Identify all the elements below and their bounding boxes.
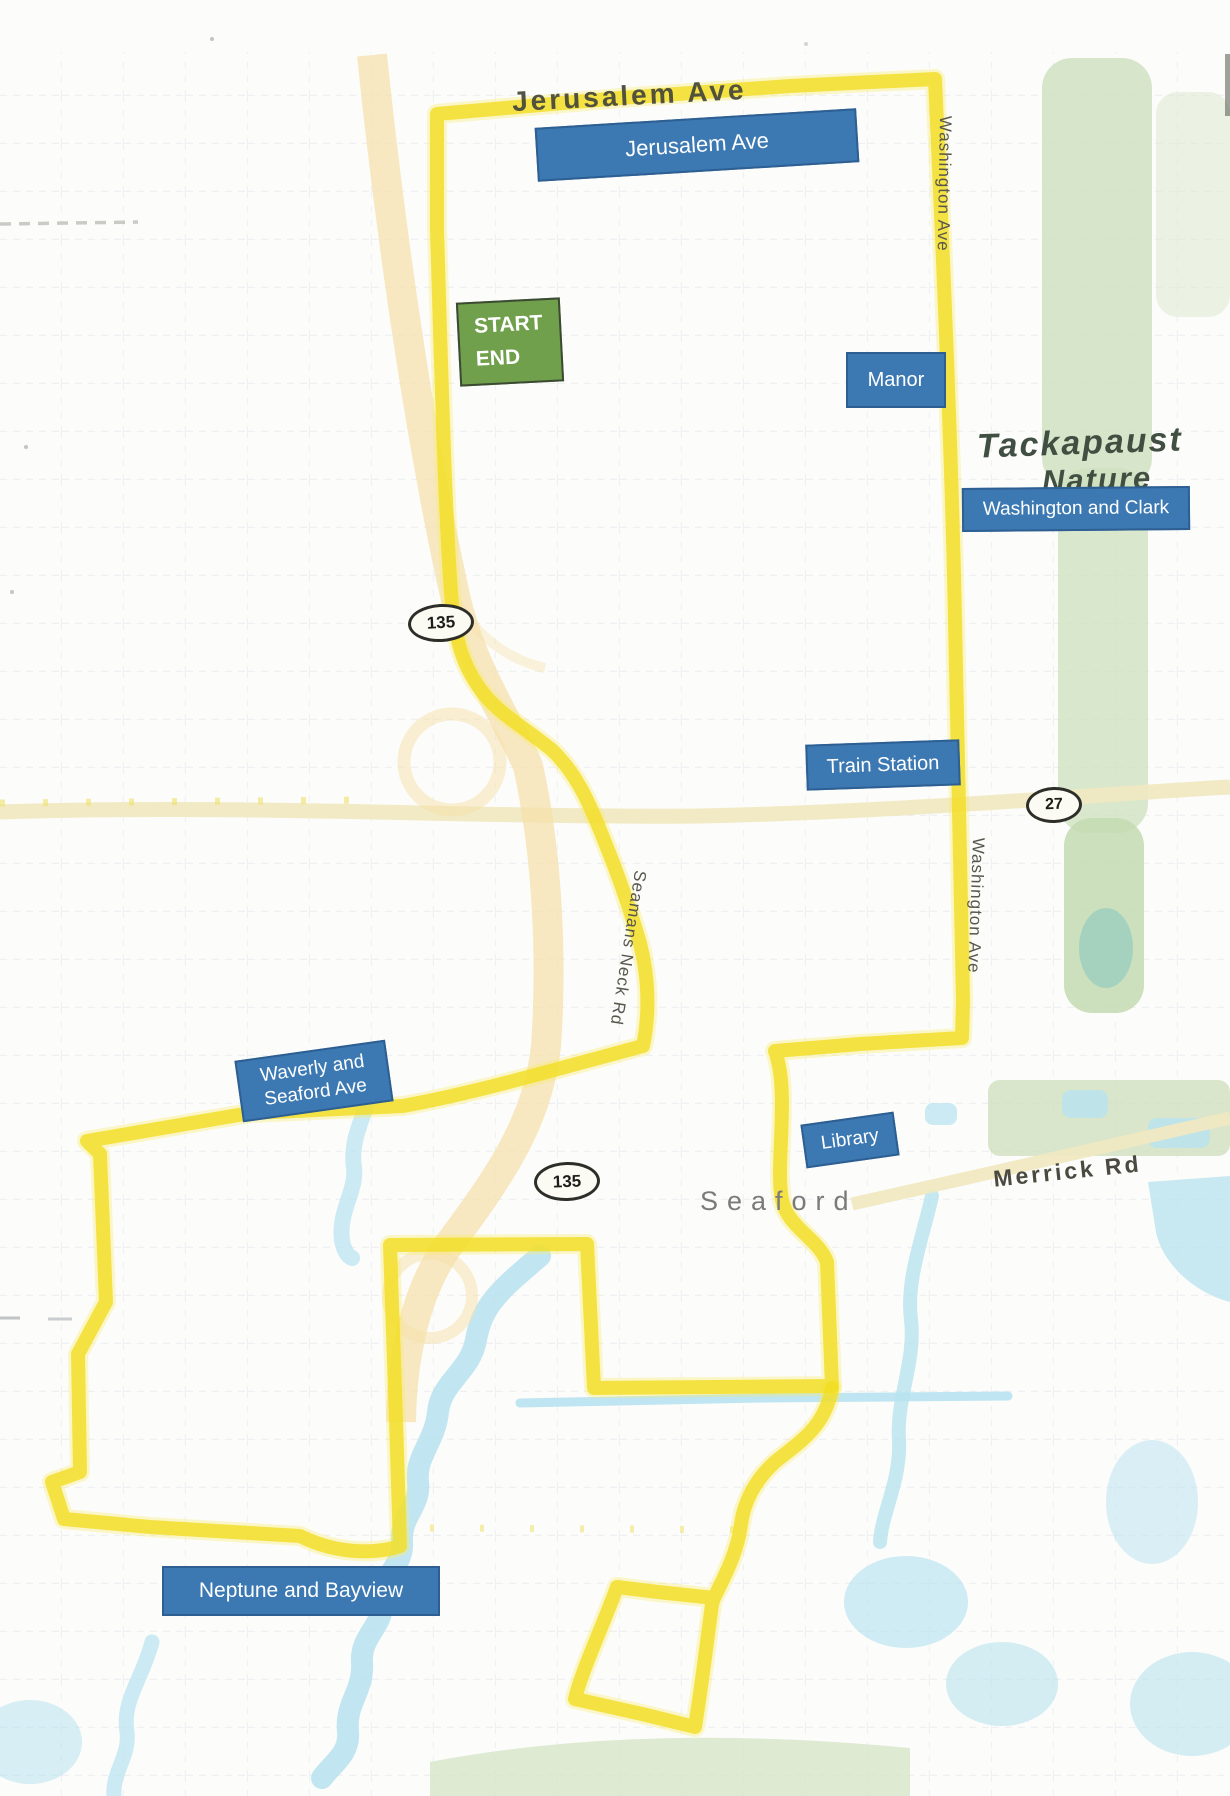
start-marker-line1: START	[473, 308, 543, 344]
tackapausha-preserve-label-line1: Tackapaust	[976, 420, 1183, 466]
train-station-stop-label: Train Station	[805, 739, 961, 790]
start-marker-line2: END	[475, 342, 521, 377]
washington-clark-stop-label: Washington and Clark	[962, 486, 1190, 532]
manor-stop-label: Manor	[846, 352, 946, 408]
washington-ave-street-label-north: Washington Ave	[933, 116, 955, 252]
neptune-bayview-stop-label: Neptune and Bayview	[162, 1566, 440, 1616]
start-end-marker: START END	[456, 297, 564, 386]
map-background	[0, 0, 1230, 1796]
map-canvas: Jerusalem Ave Washington Ave Washington …	[0, 0, 1230, 1796]
seaford-town-label: Seaford	[700, 1186, 858, 1217]
